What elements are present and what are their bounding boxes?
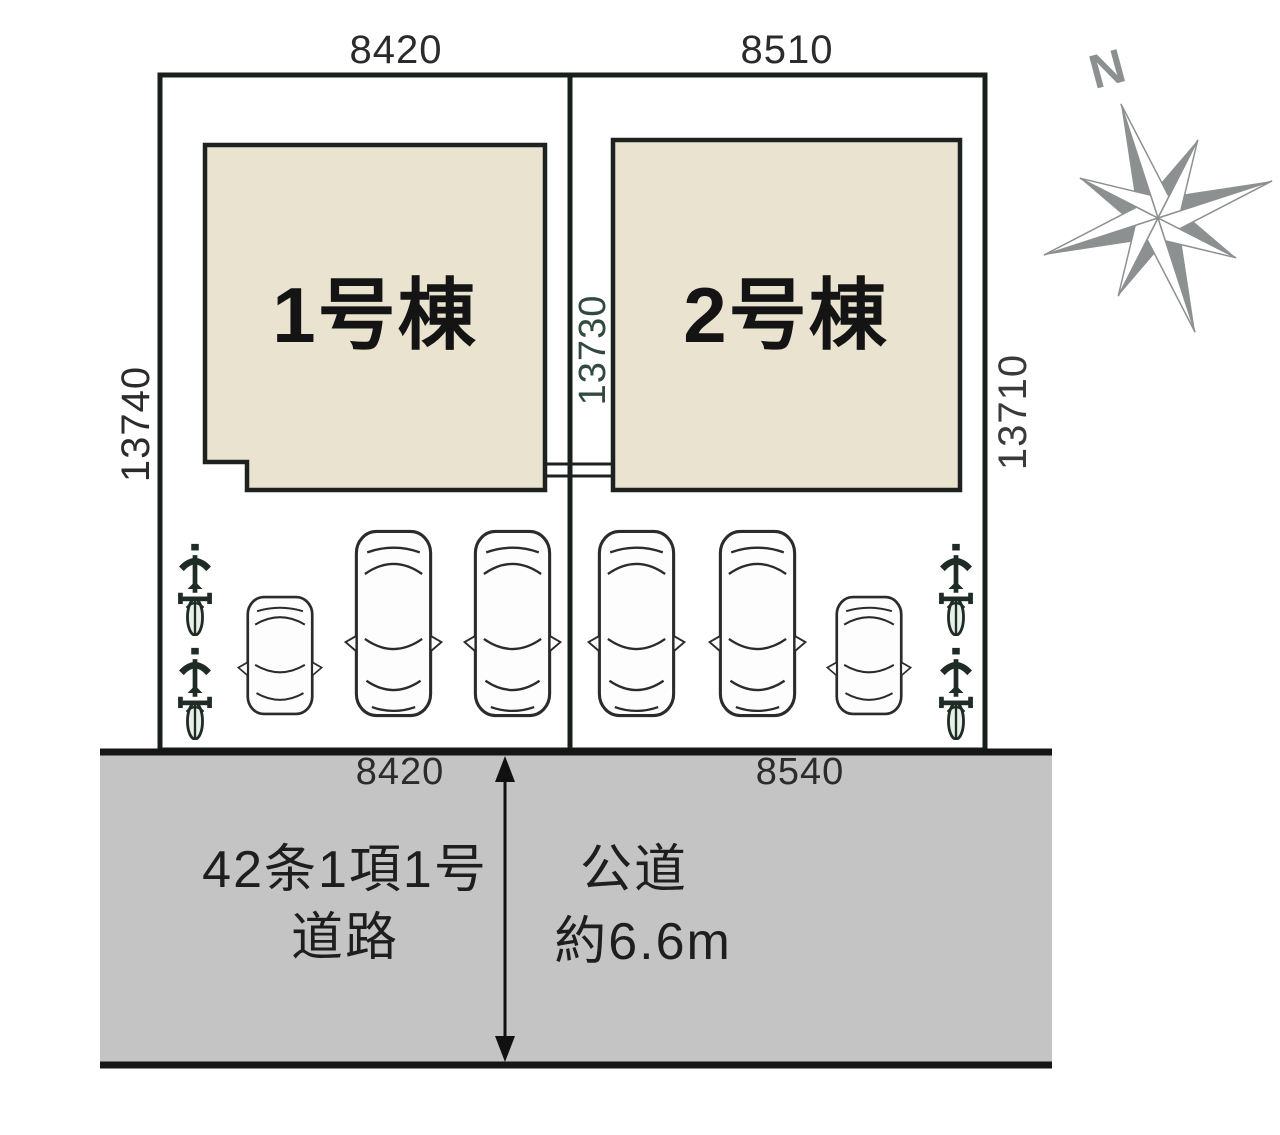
bicycle-front-icon	[178, 544, 212, 635]
bicycle-front-icon	[178, 648, 212, 739]
car-top-view-icon	[589, 531, 685, 715]
road-type-label: 公道	[580, 844, 688, 896]
bicycle-front-icon	[939, 544, 973, 635]
lot2-right-depth-dim: 13710	[993, 354, 1033, 470]
road-classification-line2: 道路	[291, 912, 399, 964]
compass-rose-icon	[1007, 67, 1280, 369]
building2-label: 2号棟	[683, 276, 888, 354]
car-top-view-icon	[827, 597, 910, 714]
lot2-frontage-dim: 8540	[756, 753, 845, 791]
lot2-top-width-dim: 8510	[741, 30, 834, 70]
car-top-view-icon	[710, 531, 806, 715]
bicycle-front-icon	[939, 648, 973, 739]
car-top-view-icon	[238, 597, 321, 714]
lot2-center-depth-dim: 13730	[574, 295, 612, 406]
road-area	[100, 752, 1052, 1065]
lot1-left-depth-dim: 13740	[116, 366, 156, 482]
road-width-label: 約6.6m	[554, 916, 732, 968]
lot1-frontage-dim: 8420	[356, 753, 445, 791]
car-top-view-icon	[465, 531, 561, 715]
car-top-view-icon	[346, 531, 442, 715]
site-plan-diagram: 8420 8510 13740 13730 13710 1号棟 2号棟 8420…	[0, 0, 1280, 1135]
building1-label: 1号棟	[272, 276, 477, 354]
building-connector	[545, 464, 613, 476]
lot1-top-width-dim: 8420	[350, 30, 443, 70]
road-classification-line1: 42条1項1号	[202, 844, 488, 896]
